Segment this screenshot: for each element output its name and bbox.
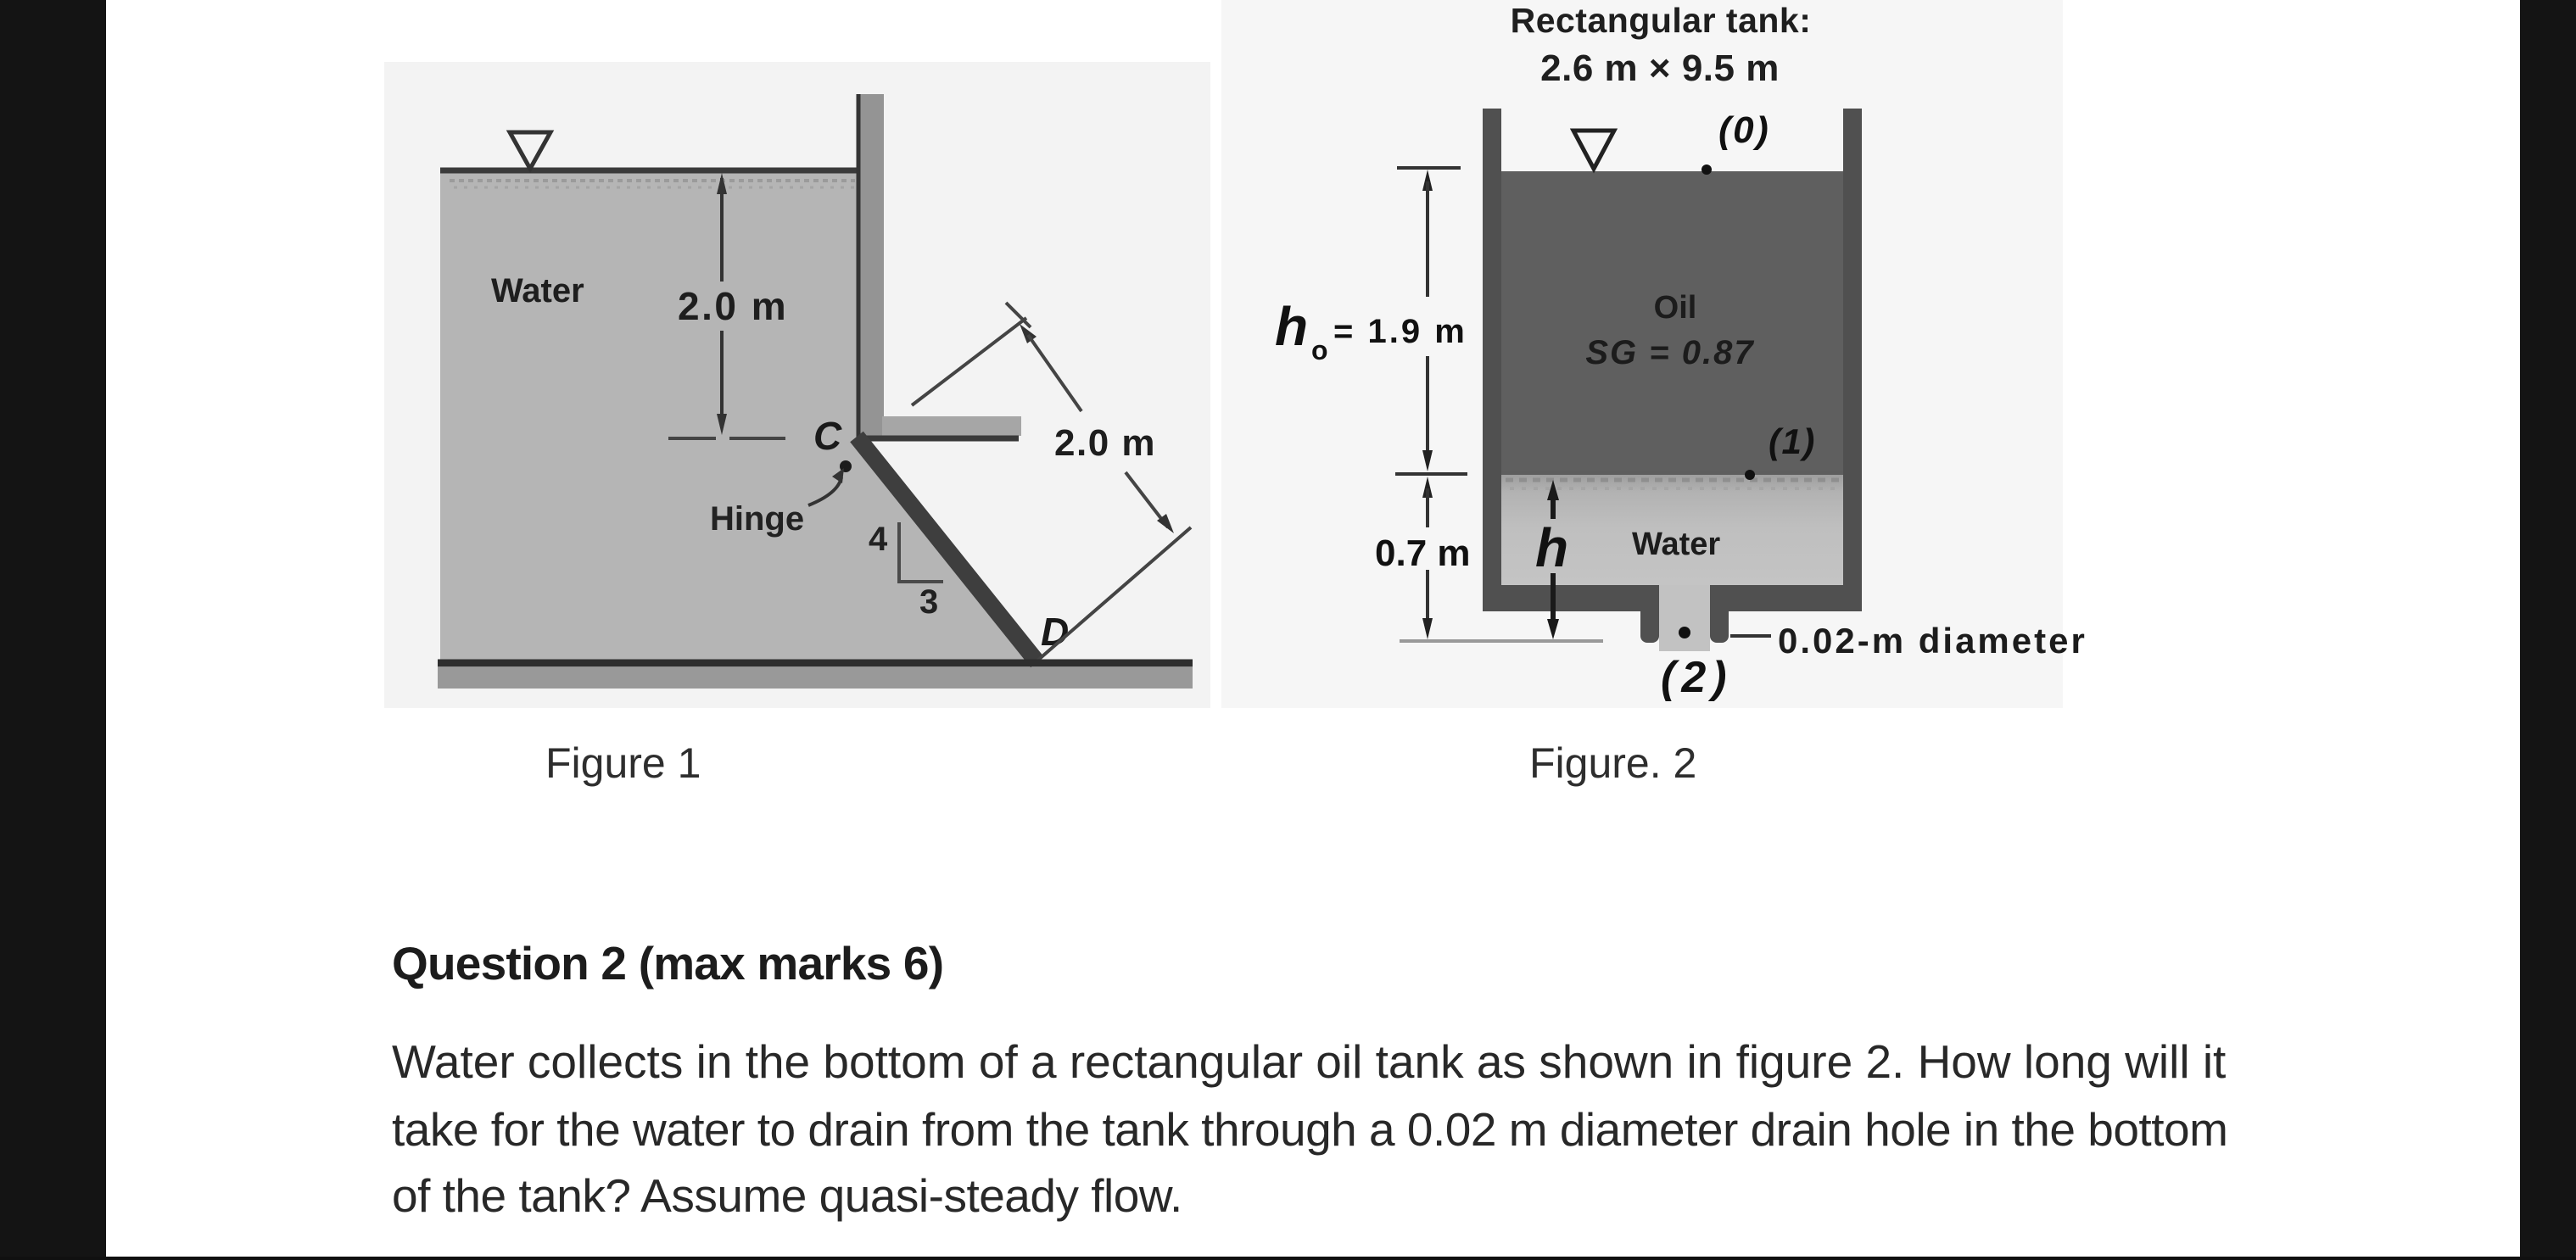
svg-text:= 1.9 m: = 1.9 m	[1333, 313, 1467, 350]
svg-text:Water: Water	[1632, 527, 1720, 562]
svg-text:2.0 m: 2.0 m	[678, 284, 788, 328]
svg-text:h: h	[1275, 296, 1308, 357]
svg-text:(2): (2)	[1661, 653, 1733, 702]
svg-text:h: h	[1535, 517, 1568, 578]
svg-text:2.0 m: 2.0 m	[1054, 422, 1156, 464]
svg-text:Water: Water	[491, 272, 584, 309]
svg-text:(1): (1)	[1769, 421, 1816, 461]
svg-text:3: 3	[919, 583, 938, 621]
svg-text:Rectangular tank:: Rectangular tank:	[1511, 1, 1812, 40]
svg-text:Oil: Oil	[1654, 290, 1697, 326]
svg-text:C: C	[813, 414, 842, 458]
svg-text:SG = 0.87: SG = 0.87	[1585, 334, 1754, 371]
svg-text:(0): (0)	[1718, 109, 1770, 151]
svg-text:Hinge: Hinge	[710, 500, 804, 538]
svg-text:0.02-m diameter: 0.02-m diameter	[1778, 621, 2087, 661]
svg-text:o: o	[1311, 335, 1328, 365]
svg-text:0.7 m: 0.7 m	[1375, 532, 1471, 574]
svg-text:4: 4	[869, 521, 888, 558]
svg-text:2.6 m × 9.5 m: 2.6 m × 9.5 m	[1540, 47, 1780, 89]
